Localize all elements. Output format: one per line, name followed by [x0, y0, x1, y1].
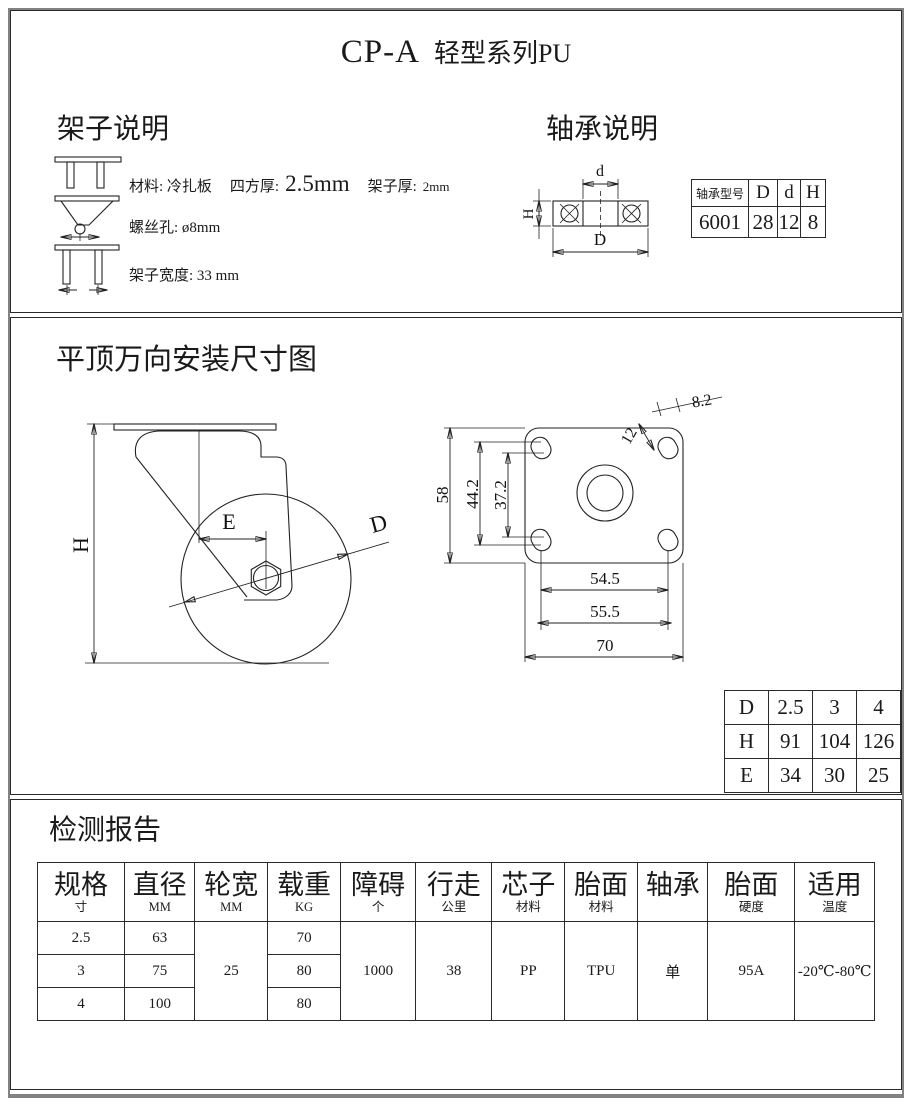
bearing-diagram: d D H — [523, 161, 673, 281]
bearing-model-value: 6001 — [692, 207, 749, 238]
bearing-heading: 轴承说明 — [546, 107, 658, 147]
report-heading: 检测报告 — [49, 808, 161, 848]
dhe-cell: 91 — [769, 725, 813, 759]
report-table: 规格寸 直径MM 轮宽MM 载重KG 障碍个 行走公里 芯子材料 胎面材料 轴承… — [37, 862, 875, 1021]
hole-span-outer-dim: 44.2 — [463, 479, 482, 509]
bearing-cell: 单 — [638, 922, 708, 1021]
dhe-table: D 2.5 3 4 H 91 104 126 E 34 30 25 — [724, 690, 901, 793]
material-text: 材料: 冷扎板 — [129, 175, 212, 196]
frame-width-icon — [51, 243, 127, 301]
overview-section: CP-A轻型系列PU 架子说明 材料: 冷扎板 — [10, 10, 902, 313]
hole-span-h2-dim: 55.5 — [590, 602, 620, 621]
hole-span-h1-dim: 54.5 — [590, 569, 620, 588]
col-hardness: 胎面硬度 — [708, 863, 795, 922]
dhe-row-label: E — [725, 759, 769, 793]
dhe-cell: 4 — [857, 691, 901, 725]
diameter-cell: 63 — [125, 922, 195, 955]
spec-sheet-page: CP-A轻型系列PU 架子说明 材料: 冷扎板 — [8, 8, 904, 1098]
bearing-table: 轴承型号 D d H 6001 28 12 8 — [691, 179, 826, 238]
col-core: 芯子材料 — [492, 863, 565, 922]
thickness-value: 2.5mm — [285, 171, 350, 197]
mounting-heading: 平顶万向安装尺寸图 — [56, 336, 317, 378]
diameter-cell: 75 — [125, 955, 195, 988]
bearing-col-H: H — [801, 180, 826, 207]
caster-side-view: H E D — [71, 411, 421, 703]
bearing-d-label: d — [596, 163, 604, 180]
frame-width-line: 架子宽度: 33 mm — [129, 264, 239, 285]
diameter-cell: 100 — [125, 988, 195, 1021]
screw-hole-icon — [51, 193, 127, 247]
col-temperature: 适用温度 — [795, 863, 875, 922]
temperature-cell: -20℃-80℃ — [795, 922, 875, 1021]
side-D-label: D — [367, 509, 390, 537]
table-row: 2.5 63 25 70 1000 38 PP TPU 单 95A -20℃-8… — [38, 922, 875, 955]
dhe-cell: 34 — [769, 759, 813, 793]
dhe-cell: 104 — [813, 725, 857, 759]
bearing-H-label: H — [521, 208, 537, 219]
screw-hole-text: 螺丝孔: ø8mm — [129, 216, 220, 237]
col-size: 规格寸 — [38, 863, 125, 922]
table-row: H 91 104 126 — [725, 725, 901, 759]
table-row: E 34 30 25 — [725, 759, 901, 793]
plate-top-view: 58 44.2 37.2 12 8.2 54.5 55.5 70 — [424, 390, 734, 682]
col-tread: 胎面材料 — [565, 863, 638, 922]
frame-heading: 架子说明 — [57, 107, 169, 147]
size-cell: 2.5 — [38, 922, 125, 955]
hardness-cell: 95A — [708, 922, 795, 1021]
thickness-label: 四方厚: — [230, 175, 279, 196]
obstacle-cell: 1000 — [340, 922, 415, 1021]
slot-width-dim: 8.2 — [691, 391, 714, 411]
bearing-col-D: D — [749, 180, 778, 207]
wheel-width-cell: 25 — [195, 922, 268, 1021]
report-section: 检测报告 规格寸 直径MM 轮宽MM 载重KG 障碍个 行走公里 芯子材料 胎面… — [10, 799, 902, 1090]
col-obstacle: 障碍个 — [340, 863, 415, 922]
load-cell: 80 — [268, 988, 341, 1021]
col-distance: 行走公里 — [416, 863, 492, 922]
dhe-cell: 30 — [813, 759, 857, 793]
size-cell: 4 — [38, 988, 125, 1021]
plate-width-dim: 70 — [597, 636, 614, 655]
dhe-row-label: H — [725, 725, 769, 759]
page-title: CP-A轻型系列PU — [11, 33, 901, 71]
load-cell: 80 — [268, 955, 341, 988]
bearing-H-value: 8 — [801, 207, 826, 238]
side-H-label: H — [68, 537, 93, 553]
load-cell: 70 — [268, 922, 341, 955]
model-code: CP-A — [341, 34, 420, 70]
distance-cell: 38 — [416, 922, 492, 1021]
frame-material-line: 材料: 冷扎板 四方厚: 2.5mm 架子厚: 2mm — [129, 171, 450, 197]
bearing-d-value: 12 — [778, 207, 801, 238]
col-bearing: 轴承 — [638, 863, 708, 922]
bearing-col-d: d — [778, 180, 801, 207]
dhe-row-label: D — [725, 691, 769, 725]
side-E-label: E — [222, 509, 235, 534]
size-cell: 3 — [38, 955, 125, 988]
dhe-cell: 2.5 — [769, 691, 813, 725]
bearing-D-value: 28 — [749, 207, 778, 238]
dhe-cell: 126 — [857, 725, 901, 759]
series-name: 轻型系列PU — [434, 39, 571, 68]
frame-thickness-label: 架子厚: — [368, 175, 417, 196]
col-diameter: 直径MM — [125, 863, 195, 922]
screw-hole-line: 螺丝孔: ø8mm — [129, 216, 220, 237]
dhe-cell: 3 — [813, 691, 857, 725]
frame-thickness-value: 2mm — [423, 179, 450, 195]
mounting-section: 平顶万向安装尺寸图 H E — [10, 317, 902, 795]
hole-span-inner-dim: 37.2 — [491, 480, 510, 510]
plate-height-dim: 58 — [433, 487, 452, 504]
frame-width-text: 架子宽度: 33 mm — [129, 264, 239, 285]
report-header-row: 规格寸 直径MM 轮宽MM 载重KG 障碍个 行走公里 芯子材料 胎面材料 轴承… — [38, 863, 875, 922]
col-load: 载重KG — [268, 863, 341, 922]
dhe-cell: 25 — [857, 759, 901, 793]
table-row: D 2.5 3 4 — [725, 691, 901, 725]
bearing-model-header: 轴承型号 — [692, 180, 749, 207]
col-wheel-width: 轮宽MM — [195, 863, 268, 922]
tread-cell: TPU — [565, 922, 638, 1021]
bearing-D-label: D — [594, 230, 606, 249]
core-cell: PP — [492, 922, 565, 1021]
